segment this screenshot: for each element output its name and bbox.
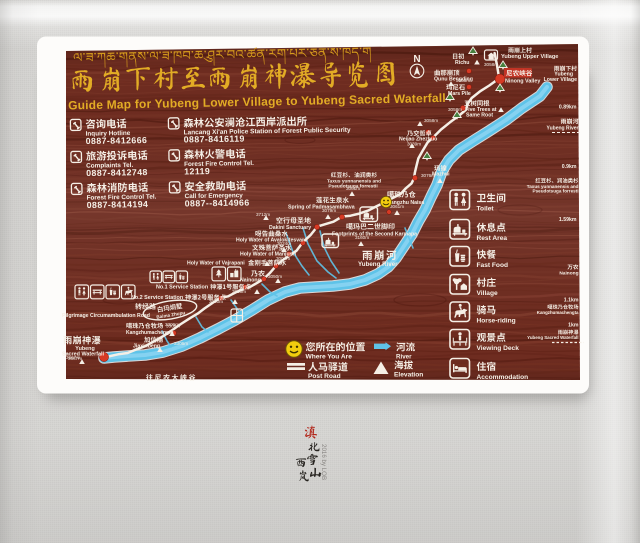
svg-text:2016 by LQB: 2016 by LQB: [320, 444, 327, 480]
svg-text:Kangzhu Naisa: Kangzhu Naisa: [387, 200, 424, 206]
svg-text:Elevation: Elevation: [394, 372, 423, 379]
svg-text:0887-8416119: 0887-8416119: [184, 134, 245, 145]
svg-text:3712m: 3712m: [256, 212, 270, 217]
svg-text:Nainong: Nainong: [559, 270, 578, 276]
svg-text:Qunu Bengding: Qunu Bengding: [434, 77, 473, 83]
svg-text:Richu: Richu: [455, 60, 469, 66]
svg-text:3306m: 3306m: [174, 341, 188, 346]
svg-text:12119: 12119: [184, 166, 210, 176]
svg-text:Dakini Sanctuary: Dakini Sanctuary: [269, 225, 311, 231]
svg-text:0887-8412748: 0887-8412748: [86, 167, 148, 178]
svg-text:3306m: 3306m: [166, 324, 180, 329]
svg-text:N: N: [413, 54, 420, 65]
svg-text:Same Root: Same Root: [466, 113, 493, 119]
svg-text:Rest Area: Rest Area: [477, 235, 508, 242]
svg-text:0887--8414966: 0887--8414966: [185, 197, 250, 208]
svg-text:3058m: 3058m: [484, 62, 498, 67]
svg-text:Pilgrimage Circumambulation Ro: Pilgrimage Circumambulation Road: [62, 313, 150, 319]
svg-text:3050m: 3050m: [232, 289, 246, 294]
svg-text:3050m: 3050m: [268, 274, 282, 279]
svg-text:3667m: 3667m: [68, 356, 82, 361]
svg-text:Holy Water of Manjusri: Holy Water of Manjusri: [240, 252, 297, 258]
svg-text:Nainong: Nainong: [240, 278, 261, 284]
svg-text:Viewing Deck: Viewing Deck: [477, 345, 520, 352]
svg-text:Holy Water of Avalokitesvara: Holy Water of Avalokitesvara: [236, 238, 307, 244]
svg-text:Fast Food: Fast Food: [477, 262, 509, 269]
svg-text:Yubeng River: Yubeng River: [358, 261, 398, 268]
svg-text:3058m: 3058m: [424, 118, 438, 123]
svg-text:1.1km: 1.1km: [564, 298, 579, 304]
svg-text:Mazhui: Mazhui: [432, 172, 450, 178]
svg-text:River: River: [396, 354, 412, 361]
svg-text:1km: 1km: [568, 323, 579, 329]
svg-text:1.59km: 1.59km: [559, 217, 577, 223]
svg-text:0887-8412666: 0887-8412666: [86, 135, 148, 146]
svg-text:Village: Village: [477, 290, 498, 297]
svg-text:Yubeng Sacred Waterfall: Yubeng Sacred Waterfall: [527, 335, 578, 340]
svg-text:No.1 Service Station: No.1 Service Station: [156, 285, 208, 291]
svg-text:Footprints of the Second Karma: Footprints of the Second Karmapa: [332, 232, 417, 238]
svg-text:Spring of Padmasambhava: Spring of Padmasambhava: [288, 205, 355, 211]
svg-text:Post Road: Post Road: [308, 373, 341, 380]
svg-text:Ninong Valley: Ninong Valley: [505, 79, 540, 85]
svg-text:Kangzhumachengta: Kangzhumachengta: [126, 330, 174, 336]
svg-text:Where You Are: Where You Are: [306, 354, 353, 361]
svg-text:Accommodation: Accommodation: [477, 374, 529, 381]
svg-text:0.89km: 0.89km: [559, 105, 577, 111]
svg-text:0887-8414194: 0887-8414194: [87, 199, 149, 210]
svg-text:3039m: 3039m: [407, 142, 421, 147]
svg-text:Pseudotsuga forrestii: Pseudotsuga forrestii: [328, 184, 377, 190]
svg-text:Yubeng River: Yubeng River: [547, 126, 579, 132]
svg-text:Holy Water of Vajrapani: Holy Water of Vajrapani: [187, 261, 245, 267]
svg-text:Jiaxinbeng: Jiaxinbeng: [133, 344, 160, 350]
svg-text:Lower Village: Lower Village: [544, 77, 577, 83]
svg-text:Pseudotsuga forresti: Pseudotsuga forresti: [533, 188, 579, 193]
svg-text:Kangzhumachengta: Kangzhumachengta: [537, 310, 579, 315]
svg-text:Toilet: Toilet: [477, 206, 495, 213]
svg-text:Yubeng Upper Village: Yubeng Upper Village: [501, 54, 558, 60]
svg-text:Horse-riding: Horse-riding: [477, 318, 516, 325]
svg-text:0.9km: 0.9km: [562, 164, 577, 170]
svg-text:3058m: 3058m: [448, 107, 462, 112]
svg-text:Mars Pile: Mars Pile: [448, 91, 471, 97]
